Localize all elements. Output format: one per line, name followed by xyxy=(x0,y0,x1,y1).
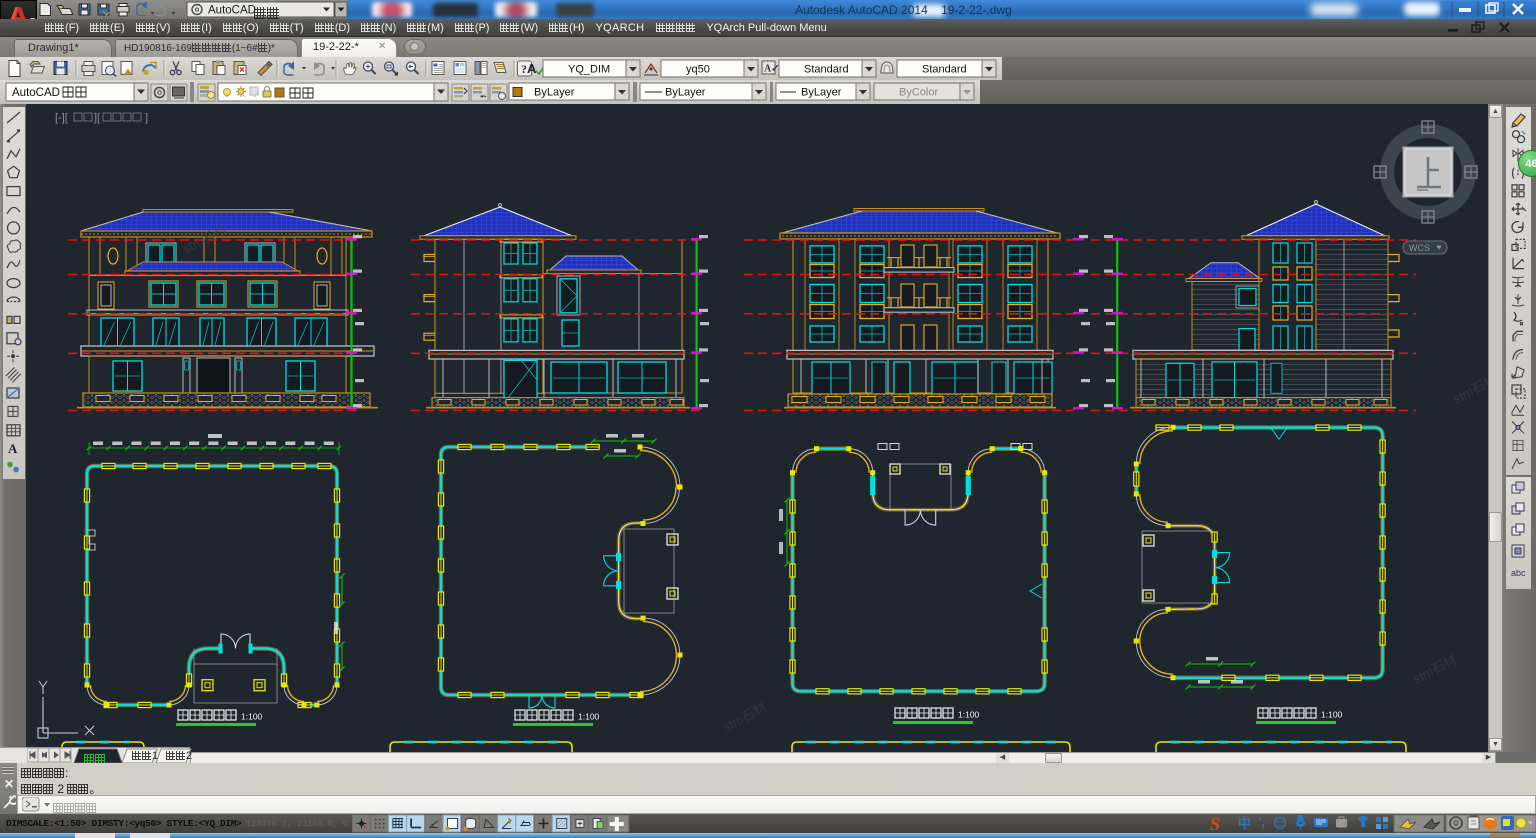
svg-text:]: ] xyxy=(145,112,148,124)
svg-text:S: S xyxy=(1210,814,1220,833)
svg-text:ByLayer: ByLayer xyxy=(534,87,575,99)
svg-text:A: A xyxy=(527,61,537,76)
svg-text:YQ_DIM: YQ_DIM xyxy=(568,64,610,76)
svg-text:1:100: 1:100 xyxy=(1321,710,1343,720)
svg-text:’,: ’, xyxy=(1258,815,1265,829)
svg-text:AutoCAD: AutoCAD xyxy=(208,5,256,17)
svg-text:[-][: [-][ xyxy=(55,112,68,124)
svg-text:WCS: WCS xyxy=(1409,243,1430,253)
svg-text:A: A xyxy=(8,441,18,456)
svg-text:1:100: 1:100 xyxy=(578,712,600,722)
svg-text:Standard: Standard xyxy=(922,64,967,76)
svg-text:ByColor: ByColor xyxy=(899,87,938,99)
svg-text:1:100: 1:100 xyxy=(958,710,980,720)
svg-text:ByLayer: ByLayer xyxy=(665,87,706,99)
svg-text:A✓: A✓ xyxy=(764,64,780,75)
svg-text:AutoCAD: AutoCAD xyxy=(12,87,60,99)
svg-text:Standard: Standard xyxy=(804,64,849,76)
svg-text:][: ][ xyxy=(94,112,100,124)
svg-text:yq50: yq50 xyxy=(686,64,710,76)
svg-text:中: 中 xyxy=(1238,816,1251,831)
svg-text:1:100: 1:100 xyxy=(241,712,263,722)
svg-text:abc: abc xyxy=(1511,568,1526,578)
svg-text:ByLayer: ByLayer xyxy=(801,87,842,99)
